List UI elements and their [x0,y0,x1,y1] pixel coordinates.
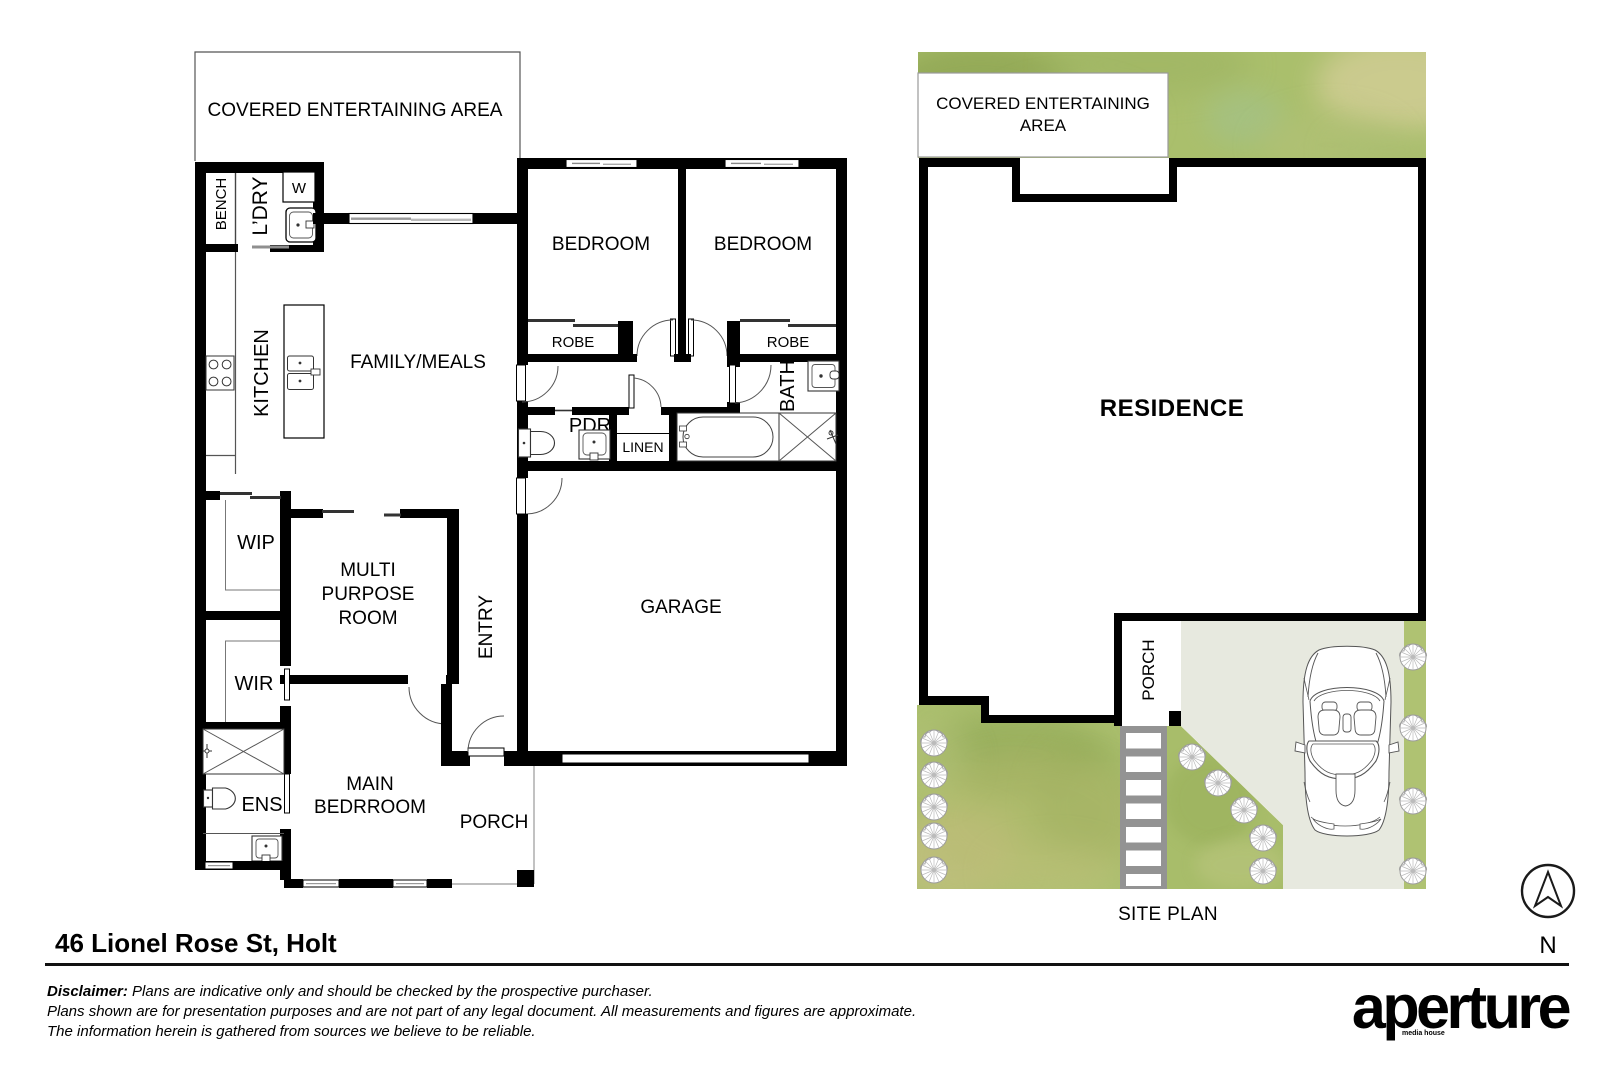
svg-text:BENCH: BENCH [213,178,230,231]
svg-text:media house: media house [1402,1030,1445,1037]
svg-text:PORCH: PORCH [1139,639,1158,700]
svg-text:BEDROOM: BEDROOM [714,234,812,255]
svg-text:GARAGE: GARAGE [640,597,721,618]
svg-text:L’DRY: L’DRY [249,176,272,235]
svg-text:aperture: aperture [1352,973,1570,1041]
svg-text:FAMILY/MEALS: FAMILY/MEALS [350,352,486,373]
svg-text:MULTI: MULTI [340,560,396,581]
svg-text:46 Lionel Rose St, Holt: 46 Lionel Rose St, Holt [55,928,337,958]
svg-text:N: N [1539,932,1556,959]
svg-text:ROBE: ROBE [767,334,810,351]
svg-text:Disclaimer: Plans are indicati: Disclaimer: Plans are indicative only an… [47,983,653,1000]
svg-text:WIP: WIP [237,532,275,554]
svg-text:BEDRROOM: BEDRROOM [314,797,426,818]
svg-text:PURPOSE: PURPOSE [322,584,415,605]
svg-text:W: W [292,180,307,197]
svg-text:COVERED ENTERTAINING: COVERED ENTERTAINING [936,94,1150,113]
svg-text:The information herein is gath: The information herein is gathered from … [47,1023,536,1040]
svg-text:ENTRY: ENTRY [476,595,497,659]
svg-text:COVERED ENTERTAINING AREA: COVERED ENTERTAINING AREA [208,100,503,121]
svg-text:MAIN: MAIN [346,774,394,795]
svg-text:ENS: ENS [241,794,282,816]
svg-text:RESIDENCE: RESIDENCE [1100,395,1245,422]
svg-text:BATH: BATH [777,360,799,412]
svg-text:PORCH: PORCH [460,812,529,833]
svg-text:BEDROOM: BEDROOM [552,234,650,255]
svg-text:AREA: AREA [1020,116,1067,135]
svg-text:SITE PLAN: SITE PLAN [1118,904,1218,925]
svg-text:LINEN: LINEN [622,439,663,455]
svg-text:WIR: WIR [235,673,274,695]
svg-text:ROOM: ROOM [338,608,397,629]
svg-text:KITCHEN: KITCHEN [251,329,273,417]
svg-text:Plans shown are for presentati: Plans shown are for presentation purpose… [47,1003,916,1020]
svg-text:ROBE: ROBE [552,334,595,351]
